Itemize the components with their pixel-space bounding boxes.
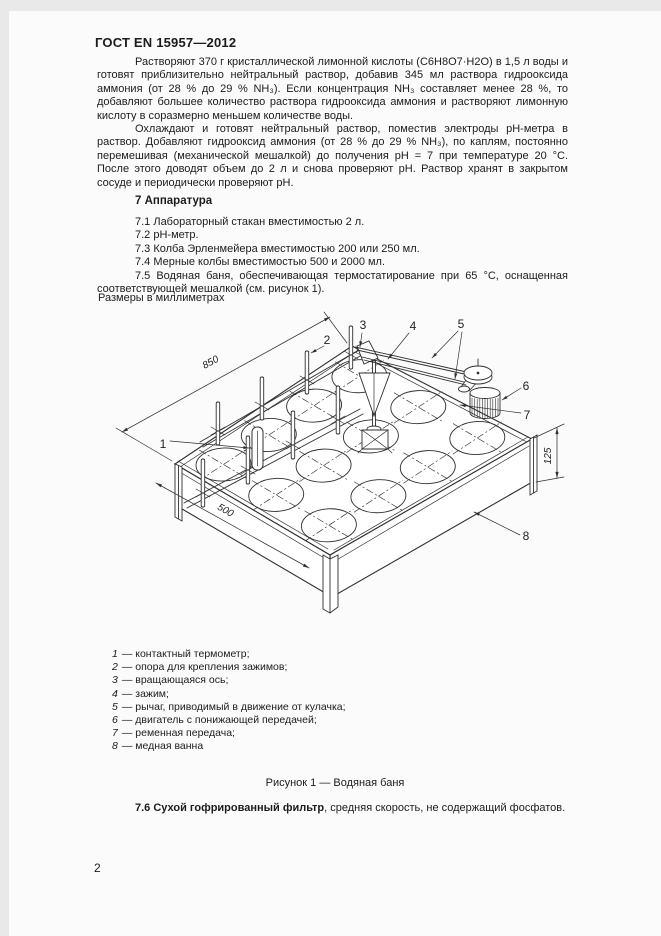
apparatus-item: 7.2 pH-метр. (97, 229, 568, 242)
contact-thermometer (252, 427, 263, 470)
page-number: 2 (94, 861, 101, 875)
callout-2: 2 (324, 333, 331, 347)
dimension-850-label: 850 (201, 354, 221, 372)
bath-drawing: 500 (116, 312, 564, 613)
document-header: ГОСТ EN 15957—2012 (95, 35, 236, 50)
apparatus-item: 7.4 Мерные колбы вместимостью 500 и 2000… (97, 256, 568, 269)
legend-item: 6— двигатель с понижающей передачей; (112, 714, 346, 727)
apparatus-list: 7.1 Лабораторный стакан вместимостью 2 л… (97, 216, 568, 296)
legend-item: 5— рычаг, приводимый в движение от кулач… (112, 701, 346, 714)
callout-6: 6 (523, 379, 530, 393)
paragraph-7-6: 7.6 Сухой гофрированный фильтр, средняя … (97, 802, 568, 814)
legend-item: 1— контактный термометр; (112, 648, 346, 661)
apparatus-item: 7.1 Лабораторный стакан вместимостью 2 л… (97, 216, 568, 229)
callout-8: 8 (523, 529, 530, 543)
paragraph-7-6-rest: , средняя скорость, не содержащий фосфат… (324, 802, 565, 814)
document-page: ГОСТ EN 15957—2012 Растворяют 370 г крис… (9, 11, 661, 936)
callout-5: 5 (458, 317, 465, 331)
callout-3: 3 (360, 318, 367, 332)
figure-legend: 1— контактный термометр; 2— опора для кр… (112, 648, 346, 754)
paragraph-solution-1: Растворяют 370 г кристаллической лимонно… (97, 56, 568, 123)
apparatus-item: 7.3 Колба Эрленмейера вместимостью 200 и… (97, 243, 568, 256)
callout-7: 7 (524, 408, 531, 422)
callout-1: 1 (160, 437, 167, 451)
paragraph-solution-2: Охлаждают и готовят нейтральный раствор,… (97, 123, 568, 190)
callout-4: 4 (410, 319, 417, 333)
dimension-125-label: 125 (543, 447, 554, 464)
legend-item: 2— опора для крепления зажимов; (112, 661, 346, 674)
legend-item: 4— зажим; (112, 688, 346, 701)
paragraph-7-6-bold: 7.6 Сухой гофрированный фильтр (135, 802, 324, 814)
section-heading-apparatus: 7 Аппаратура (135, 195, 212, 207)
figure-caption: Рисунок 1 — Водяная баня (9, 777, 661, 789)
water-bath-figure: 500 (112, 309, 582, 647)
legend-item: 7— ременная передача; (112, 727, 346, 740)
legend-item: 8— медная ванна (112, 740, 346, 753)
legend-item: 3— вращающаяся ось; (112, 674, 346, 687)
dimension-125: 125 (534, 424, 564, 482)
dimensions-note: Размеры в миллиметрах (98, 292, 224, 304)
